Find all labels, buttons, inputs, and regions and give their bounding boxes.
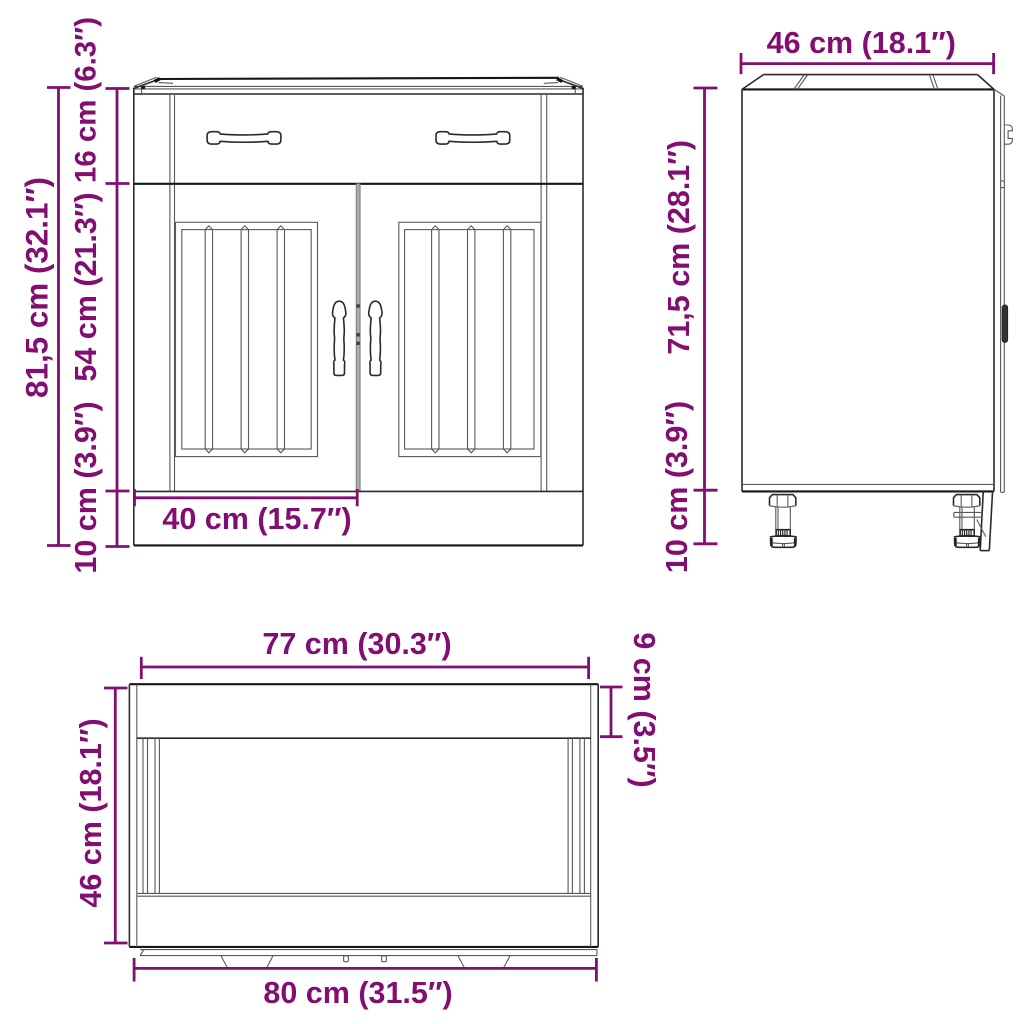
svg-text:71,5 cm (28.1″): 71,5 cm (28.1″) — [662, 140, 696, 355]
svg-text:40 cm (15.7″): 40 cm (15.7″) — [162, 502, 351, 536]
svg-text:10 cm (3.9″): 10 cm (3.9″) — [660, 401, 694, 573]
svg-text:16 cm (6.3″): 16 cm (6.3″) — [69, 17, 102, 183]
svg-text:46 cm (18.1″): 46 cm (18.1″) — [767, 26, 956, 60]
svg-text:10 cm (3.9″): 10 cm (3.9″) — [69, 401, 103, 573]
svg-text:81,5 cm (32.1″): 81,5 cm (32.1″) — [20, 177, 55, 398]
svg-text:54 cm (21.3″): 54 cm (21.3″) — [69, 192, 103, 381]
svg-text:80 cm (31.5″): 80 cm (31.5″) — [263, 976, 452, 1010]
svg-text:46 cm (18.1″): 46 cm (18.1″) — [74, 718, 108, 907]
svg-text:9 cm (3.5″): 9 cm (3.5″) — [627, 632, 661, 787]
svg-text:77 cm (30.3″): 77 cm (30.3″) — [262, 627, 451, 661]
